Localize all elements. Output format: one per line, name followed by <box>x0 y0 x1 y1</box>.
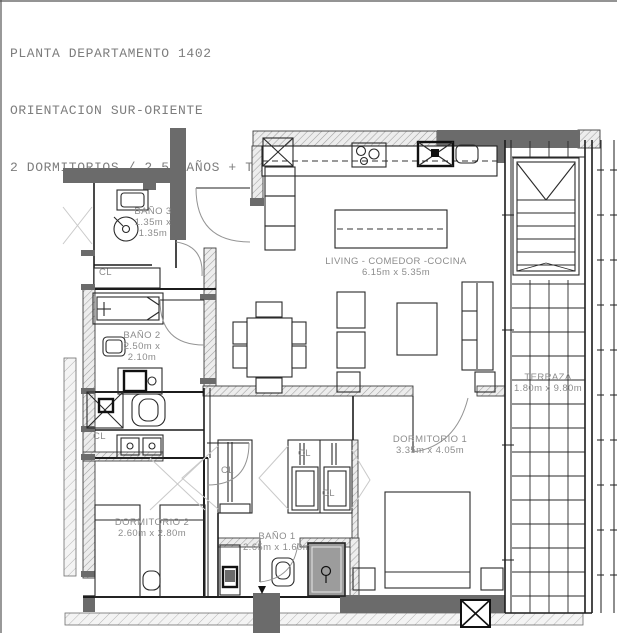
dining-set <box>233 302 306 393</box>
closets <box>218 440 352 513</box>
bedroom-1-furniture <box>353 492 503 590</box>
room-label-terraza: TERRAZA 1.80m x 9.80m <box>514 372 582 394</box>
room-dims: 2.10m <box>123 352 160 363</box>
closet-label: CL <box>221 465 234 476</box>
room-label-bano-2: BAÑO 2 2.50m x 2.10m <box>123 330 160 363</box>
room-name: BAÑO 3 <box>134 206 171 217</box>
level-marker <box>258 586 266 594</box>
room-label-dormitorio-1: DORMITORIO 1 3.35m x 4.05m <box>393 434 467 456</box>
room-name: DORMITORIO 2 <box>115 517 189 528</box>
room-dims: 2.50m x <box>123 341 160 352</box>
closet-swing-marks <box>63 207 370 510</box>
nightstand <box>481 568 503 590</box>
room-name: BAÑO 2 <box>123 330 160 341</box>
room-dims: 6.15m x 5.35m <box>325 267 467 278</box>
closet-label: CL <box>298 448 311 459</box>
closet-label: CL <box>99 267 112 278</box>
room-dims: 1.35m x <box>134 217 171 228</box>
kitchen <box>262 138 497 250</box>
room-dims: 2.65m x 1.60m <box>243 542 311 553</box>
room-label-living: LIVING - COMEDOR -COCINA 6.15m x 5.35m <box>325 256 467 278</box>
room-label-bano-1: BAÑO 1 2.65m x 1.60m <box>243 531 311 553</box>
closet-label: CL <box>322 488 335 499</box>
shower <box>308 543 345 596</box>
room-label-bano-3: BAÑO 3 1.35m x 1.35m <box>134 206 171 239</box>
deck-boards <box>512 280 585 613</box>
room-name: LIVING - COMEDOR -COCINA <box>325 256 467 267</box>
room-dims: 2.60m x 2.80m <box>115 528 189 539</box>
closet-label: CL <box>93 431 106 442</box>
room-name: DORMITORIO 1 <box>393 434 467 445</box>
floorplan-page: PLANTA DEPARTAMENTO 1402 ORIENTACION SUR… <box>0 0 617 633</box>
armchair <box>337 292 365 328</box>
room-dims: 1.35m <box>134 228 171 239</box>
room-label-dormitorio-2: DORMITORIO 2 2.60m x 2.80m <box>115 517 189 539</box>
dining-table <box>247 318 292 377</box>
room-dims: 3.35m x 4.05m <box>393 445 467 456</box>
room-dims: 1.80m x 9.80m <box>514 383 582 394</box>
room-name: BAÑO 1 <box>243 531 311 542</box>
coffee-table <box>397 303 437 355</box>
room-name: TERRAZA <box>514 372 582 383</box>
stool <box>143 571 160 590</box>
living-furniture <box>337 282 495 392</box>
double-bed <box>385 492 470 588</box>
armchair <box>337 332 365 368</box>
